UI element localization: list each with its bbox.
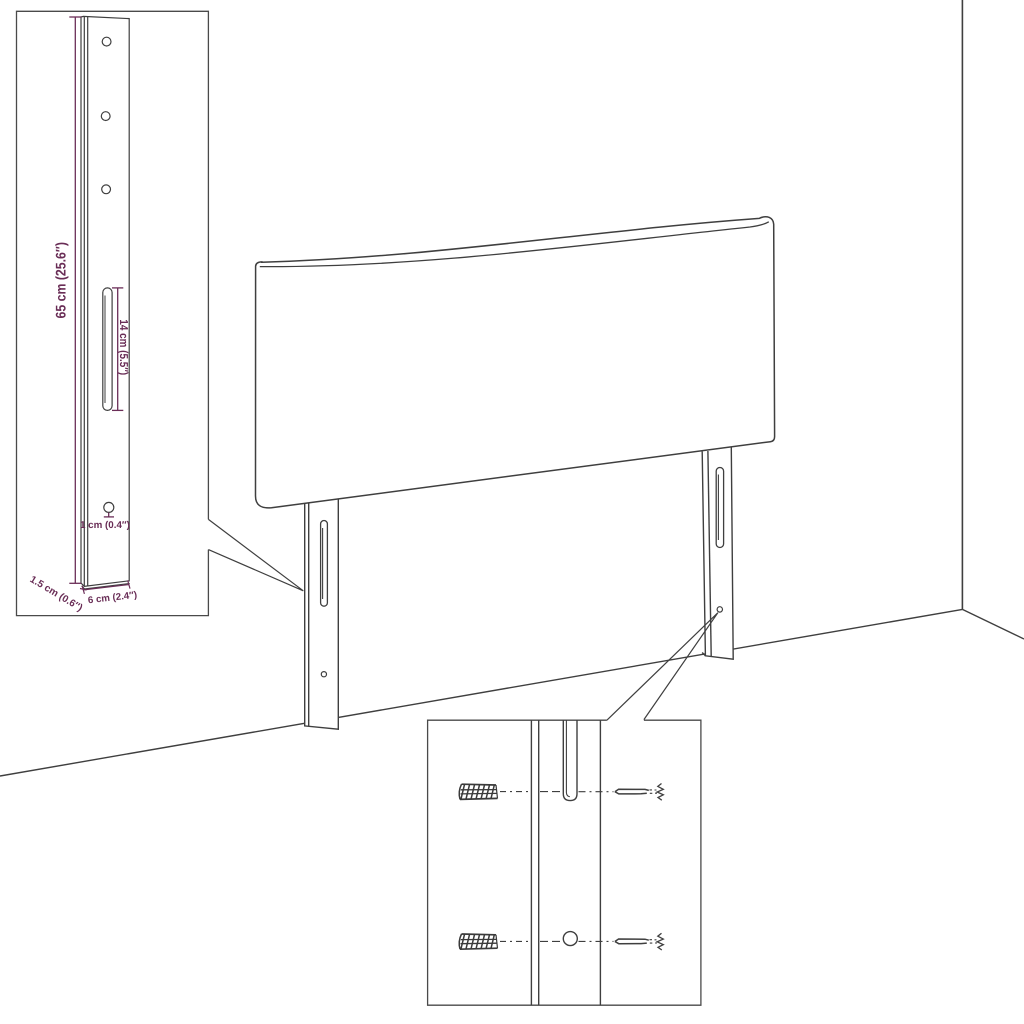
svg-text:6 cm (2.4″): 6 cm (2.4″) (87, 590, 137, 607)
svg-text:1 cm (0.4″): 1 cm (0.4″) (80, 520, 130, 531)
svg-text:65 cm (25.6″): 65 cm (25.6″) (53, 242, 69, 318)
svg-text:14 cm (5.5″): 14 cm (5.5″) (117, 319, 129, 375)
